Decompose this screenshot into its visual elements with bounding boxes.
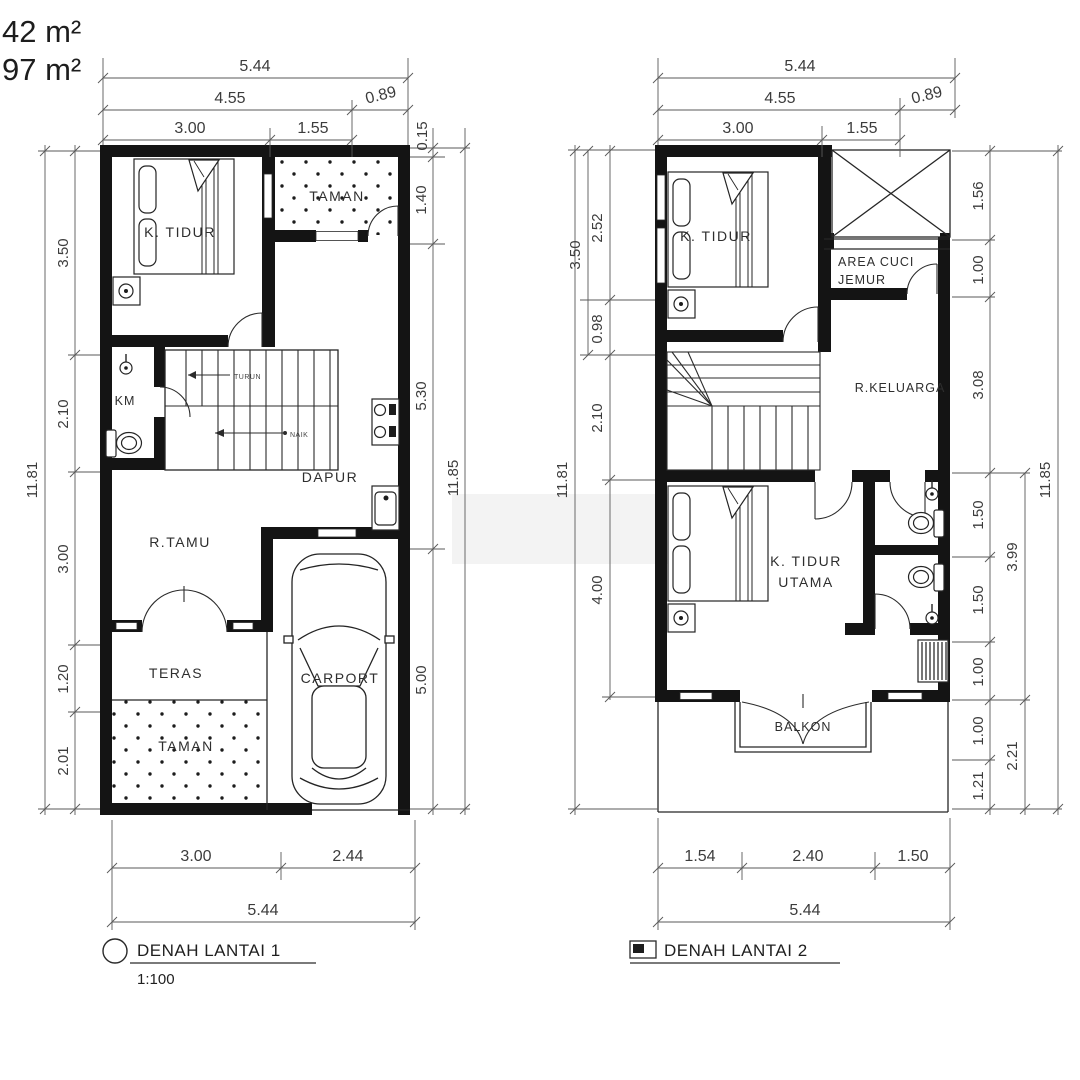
shower-head-icon: [120, 354, 132, 374]
kitchen-sink: [372, 486, 399, 530]
svg-text:1.20: 1.20: [55, 664, 72, 693]
toilet-bath2: [909, 564, 945, 591]
svg-text:2.01: 2.01: [55, 746, 72, 775]
svg-text:11.85: 11.85: [445, 460, 462, 496]
svg-text:11.81: 11.81: [554, 462, 571, 498]
svg-text:5.44: 5.44: [239, 58, 270, 75]
svg-text:5.44: 5.44: [247, 902, 278, 919]
svg-text:4.55: 4.55: [214, 90, 245, 107]
svg-text:2.10: 2.10: [589, 403, 606, 432]
room-label-bedroom: K. TIDUR: [144, 224, 216, 240]
svg-text:3.00: 3.00: [722, 120, 753, 137]
svg-text:1.55: 1.55: [846, 120, 877, 137]
roof-void-x: [824, 150, 950, 249]
stove: [372, 399, 399, 445]
floorplan-drawing: 42 m² 97 m²: [0, 0, 1080, 1080]
svg-text:2.10: 2.10: [55, 399, 72, 428]
floor-plan-1: TURUN NAIK: [24, 58, 470, 988]
plan1-scale: 1:100: [137, 971, 175, 988]
svg-text:1.50: 1.50: [970, 500, 987, 529]
svg-text:1.21: 1.21: [970, 771, 987, 800]
svg-text:3.00: 3.00: [174, 120, 205, 137]
bed: [134, 159, 234, 274]
plan1-title-block: DENAH LANTAI 1 1:100: [103, 939, 316, 988]
svg-text:1.40: 1.40: [413, 185, 430, 214]
svg-text:5.30: 5.30: [413, 381, 430, 410]
shower-head-icon: [926, 480, 938, 500]
land-area-text: 42 m²: [2, 14, 81, 49]
room-label-master-1: K. TIDUR: [770, 553, 842, 569]
svg-text:5.44: 5.44: [789, 902, 820, 919]
balcony-outline: [658, 702, 948, 812]
svg-text:3.00: 3.00: [55, 544, 72, 573]
svg-text:3.00: 3.00: [180, 848, 211, 865]
room-label-terrace: TERAS: [149, 665, 203, 681]
svg-text:1.54: 1.54: [684, 848, 715, 865]
svg-text:0.98: 0.98: [589, 314, 606, 343]
svg-text:1.55: 1.55: [297, 120, 328, 137]
louver-vent: [918, 640, 948, 682]
room-label-kitchen: DAPUR: [302, 469, 359, 485]
svg-text:1.56: 1.56: [970, 181, 987, 210]
blueprint-page: 42 m² 97 m²: [0, 0, 1080, 1080]
room-label-laundry-1: AREA CUCI: [838, 255, 914, 269]
toilet: [106, 430, 142, 457]
building-area-text: 97 m²: [2, 52, 81, 87]
plan2-title: DENAH LANTAI 2: [664, 941, 808, 960]
svg-text:3.08: 3.08: [970, 370, 987, 399]
shower-head-icon-2: [926, 604, 938, 624]
room-label-master-2: UTAMA: [778, 574, 833, 590]
plan1-stairs: [165, 350, 338, 470]
svg-text:1.00: 1.00: [970, 657, 987, 686]
svg-text:3.99: 3.99: [1004, 542, 1021, 571]
svg-text:1.00: 1.00: [970, 255, 987, 284]
toilet-bath1: [909, 510, 945, 537]
stair-up-label: NAIK: [290, 432, 308, 439]
svg-text:4.00: 4.00: [589, 575, 606, 604]
svg-text:1.50: 1.50: [970, 585, 987, 614]
nightstand-master: [668, 604, 695, 632]
room-label-bath: KM: [115, 394, 136, 408]
plan2-dimension-text: 5.44 4.55 0.89 3.00 1.55 11.81 3.50 2.52…: [554, 58, 1054, 919]
room-label-carport: CARPORT: [301, 670, 380, 686]
svg-text:3.50: 3.50: [567, 240, 584, 269]
room-label-living: R.TAMU: [149, 534, 211, 550]
room-label-garden-top: TAMAN: [309, 188, 364, 204]
svg-text:2.44: 2.44: [332, 848, 363, 865]
svg-text:5.44: 5.44: [784, 58, 815, 75]
svg-text:2.52: 2.52: [589, 213, 606, 242]
svg-text:0.15: 0.15: [414, 121, 431, 150]
room-label-laundry-2: JEMUR: [838, 273, 886, 287]
svg-text:1.00: 1.00: [970, 716, 987, 745]
svg-text:5.00: 5.00: [413, 665, 430, 694]
bed-master: [668, 486, 768, 601]
svg-text:4.55: 4.55: [764, 90, 795, 107]
area-summary: 42 m² 97 m²: [2, 14, 81, 87]
svg-text:1.50: 1.50: [897, 848, 928, 865]
plan2-title-block: DENAH LANTAI 2: [630, 941, 840, 963]
svg-text:0.89: 0.89: [364, 84, 398, 108]
svg-text:3.50: 3.50: [55, 238, 72, 267]
svg-text:11.85: 11.85: [1037, 462, 1054, 498]
room-label-bedroom2: K. TIDUR: [680, 228, 752, 244]
svg-text:11.81: 11.81: [24, 462, 41, 498]
room-label-balcony: BALKON: [775, 720, 832, 734]
svg-text:0.89: 0.89: [910, 84, 944, 108]
nightstand: [668, 290, 695, 318]
room-label-garden-bottom: TAMAN: [158, 738, 213, 754]
room-label-family: R.KELUARGA: [855, 381, 946, 395]
stair-down-label: TURUN: [234, 374, 261, 381]
svg-text:2.40: 2.40: [792, 848, 823, 865]
plan2-stairs: [667, 352, 820, 470]
plan1-title: DENAH LANTAI 1: [137, 941, 281, 960]
nightstand: [113, 277, 140, 305]
svg-text:2.21: 2.21: [1004, 741, 1021, 770]
